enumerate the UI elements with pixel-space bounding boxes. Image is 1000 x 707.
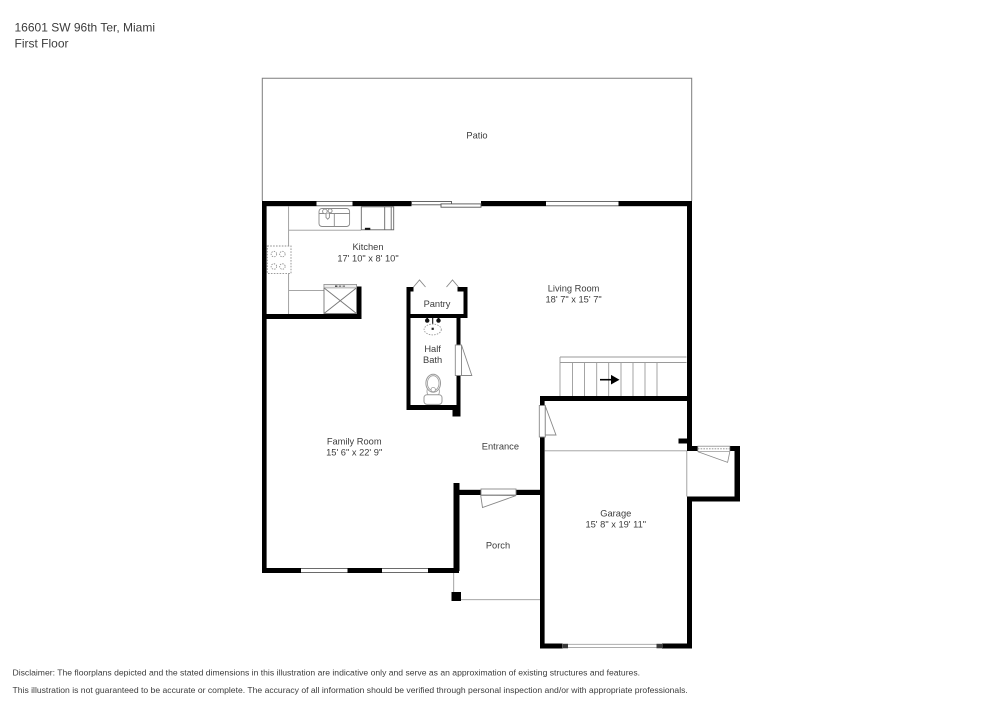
svg-text:Patio: Patio [466,130,487,140]
svg-text:This illustration is not guara: This illustration is not guaranteed to b… [13,685,688,695]
svg-text:First Floor: First Floor [15,36,69,50]
svg-text:Porch: Porch [486,540,510,550]
svg-text:Half: Half [424,344,441,354]
svg-text:Living Room: Living Room [548,283,600,293]
svg-text:16601 SW 96th Ter, Miami: 16601 SW 96th Ter, Miami [15,21,156,35]
svg-text:Entrance: Entrance [482,441,519,451]
svg-text:Kitchen: Kitchen [352,242,383,252]
svg-text:15' 6" x 22' 9": 15' 6" x 22' 9" [326,448,382,458]
svg-text:Family Room: Family Room [327,437,382,447]
svg-text:15' 8" x 19' 11": 15' 8" x 19' 11" [585,520,646,530]
svg-text:Pantry: Pantry [424,299,451,309]
svg-text:Bath: Bath [423,355,442,365]
svg-text:Garage: Garage [600,508,631,518]
svg-text:18' 7" x 15' 7": 18' 7" x 15' 7" [546,295,602,305]
svg-text:Disclaimer: The floorplans dep: Disclaimer: The floorplans depicted and … [13,668,641,678]
svg-text:17' 10" x 8' 10": 17' 10" x 8' 10" [337,253,398,263]
